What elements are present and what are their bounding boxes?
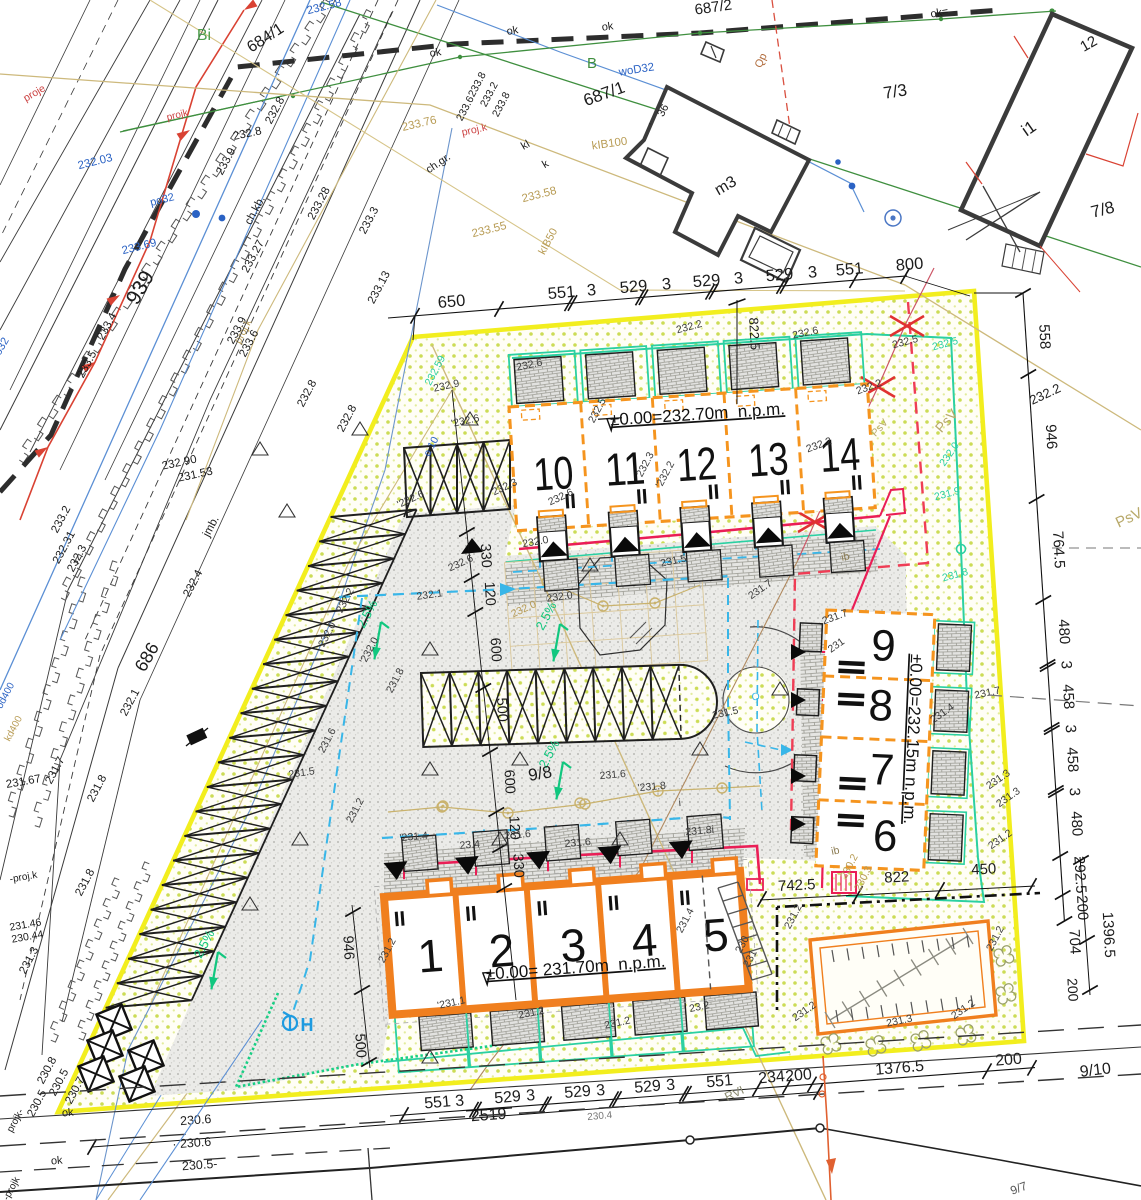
svg-text:529: 529 — [494, 1088, 522, 1107]
svg-text:458: 458 — [1059, 684, 1077, 710]
svg-text:3: 3 — [733, 269, 744, 288]
svg-text:II: II — [779, 476, 792, 500]
svg-text:3: 3 — [1062, 724, 1079, 733]
svg-text:551: 551 — [835, 259, 864, 279]
svg-text:231.6: 231.6 — [504, 828, 531, 842]
svg-text:3: 3 — [1057, 660, 1074, 669]
svg-text:600: 600 — [500, 769, 517, 794]
svg-text:231.8i: 231.8i — [685, 824, 715, 838]
svg-text:200: 200 — [995, 1050, 1023, 1069]
svg-text:H: H — [301, 1015, 314, 1035]
svg-text:822: 822 — [884, 868, 910, 886]
svg-text:Bi: Bi — [197, 27, 211, 44]
svg-text:800: 800 — [895, 254, 924, 274]
svg-text:II: II — [464, 902, 477, 926]
svg-text:9/8: 9/8 — [527, 762, 554, 785]
svg-text:480: 480 — [1067, 811, 1085, 837]
svg-text:764.5: 764.5 — [1049, 531, 1068, 569]
svg-text:529: 529 — [564, 1083, 592, 1102]
svg-text:3: 3 — [586, 281, 597, 300]
svg-text:7: 7 — [869, 745, 896, 795]
svg-text:529: 529 — [765, 265, 794, 285]
svg-text:8: 8 — [868, 681, 895, 731]
svg-text:230.4: 230.4 — [587, 1110, 613, 1123]
svg-text:230.5-: 230.5- — [182, 1157, 218, 1173]
svg-text:ok: ok — [50, 1154, 63, 1167]
svg-text:500: 500 — [351, 1033, 368, 1058]
svg-text:558: 558 — [1035, 324, 1053, 350]
svg-text:231.6: 231.6 — [564, 836, 591, 850]
svg-text:946: 946 — [339, 935, 356, 960]
svg-text:742.5: 742.5 — [778, 876, 816, 895]
svg-text:500: 500 — [493, 697, 510, 722]
svg-text:529: 529 — [619, 277, 648, 297]
svg-text:B: B — [587, 55, 597, 72]
svg-text:200: 200 — [1064, 978, 1081, 1002]
svg-text:120: 120 — [481, 581, 498, 606]
svg-text:'231.4: '231.4 — [399, 830, 428, 844]
svg-text:7/3: 7/3 — [882, 80, 908, 102]
svg-text:231.6: 231.6 — [599, 768, 626, 782]
svg-text:· 230.6: · 230.6 — [172, 1135, 212, 1152]
svg-text:9: 9 — [870, 621, 897, 671]
svg-text:O: O — [751, 691, 760, 704]
svg-text:480: 480 — [1055, 619, 1073, 645]
svg-text:458: 458 — [1063, 747, 1081, 773]
svg-text:II: II — [707, 481, 720, 505]
svg-text:529: 529 — [692, 271, 721, 291]
svg-text:3: 3 — [525, 1087, 535, 1105]
svg-text:650: 650 — [437, 292, 466, 312]
svg-text:529: 529 — [634, 1078, 662, 1097]
svg-text:822.5: 822.5 — [746, 317, 763, 350]
svg-text:II: II — [536, 897, 549, 921]
svg-text:3: 3 — [1066, 787, 1083, 796]
svg-text:II: II — [850, 471, 863, 495]
svg-text:946: 946 — [1042, 424, 1060, 450]
svg-text:450: 450 — [971, 860, 997, 878]
svg-text:200: 200 — [1073, 895, 1091, 921]
svg-text:'231.8: '231.8 — [637, 780, 666, 794]
svg-text:II: II — [635, 485, 648, 509]
svg-text:3: 3 — [665, 1077, 675, 1095]
svg-text:230.6: 230.6 — [180, 1112, 212, 1128]
svg-text:600: 600 — [487, 637, 504, 662]
svg-text:ok: ok — [61, 1106, 74, 1119]
svg-text:3: 3 — [454, 1092, 464, 1110]
svg-text:551: 551 — [547, 283, 576, 303]
svg-text:330: 330 — [509, 853, 526, 878]
svg-text:3: 3 — [807, 263, 818, 282]
svg-text:3: 3 — [595, 1082, 605, 1100]
svg-text:ok: ok — [601, 20, 615, 34]
svg-text:II: II — [393, 908, 406, 932]
svg-text:330: 330 — [477, 543, 494, 568]
svg-text:6: 6 — [872, 811, 899, 861]
svg-text:1: 1 — [416, 929, 445, 983]
svg-text:1396.5: 1396.5 — [1099, 911, 1118, 958]
svg-text:551: 551 — [424, 1093, 452, 1112]
svg-text:II: II — [607, 892, 620, 916]
svg-text:3: 3 — [661, 275, 672, 294]
svg-text:704: 704 — [1065, 929, 1083, 955]
svg-text:23.4: 23.4 — [459, 838, 481, 852]
